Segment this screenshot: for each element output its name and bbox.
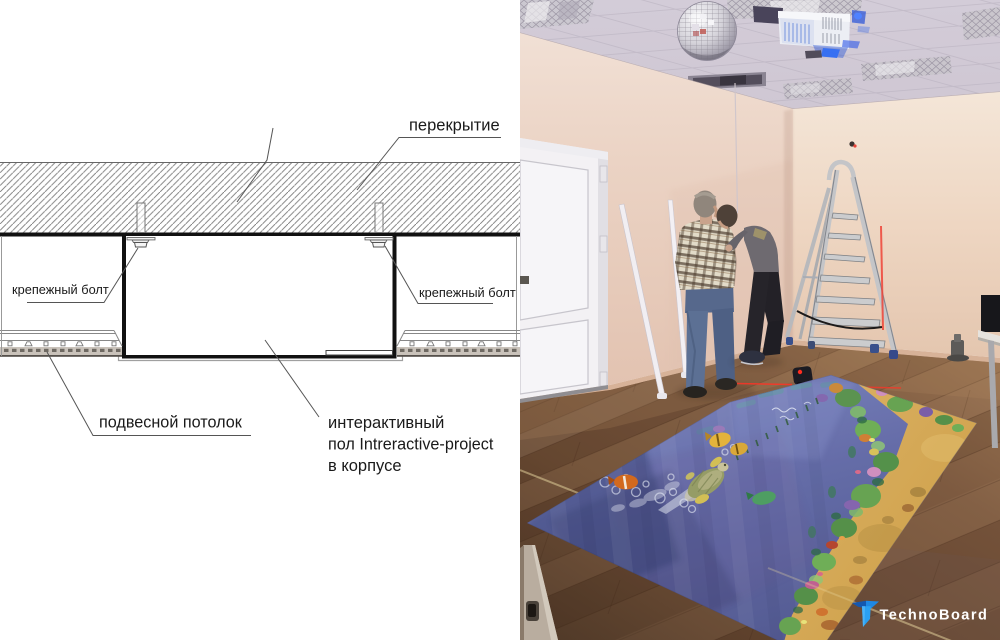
svg-text:крепежный болт: крепежный болт [12,282,109,297]
svg-text:пол Intreractive-project: пол Intreractive-project [328,436,494,454]
svg-text:TechnoBoard: TechnoBoard [880,608,989,624]
svg-text:интерактивный: интерактивный [328,414,444,432]
svg-text:подвесной потолок: подвесной потолок [99,414,243,432]
svg-text:перекрытие: перекрытие [409,117,500,135]
svg-text:крепежный болт: крепежный болт [419,285,516,300]
svg-text:в корпусе: в корпусе [328,457,402,475]
